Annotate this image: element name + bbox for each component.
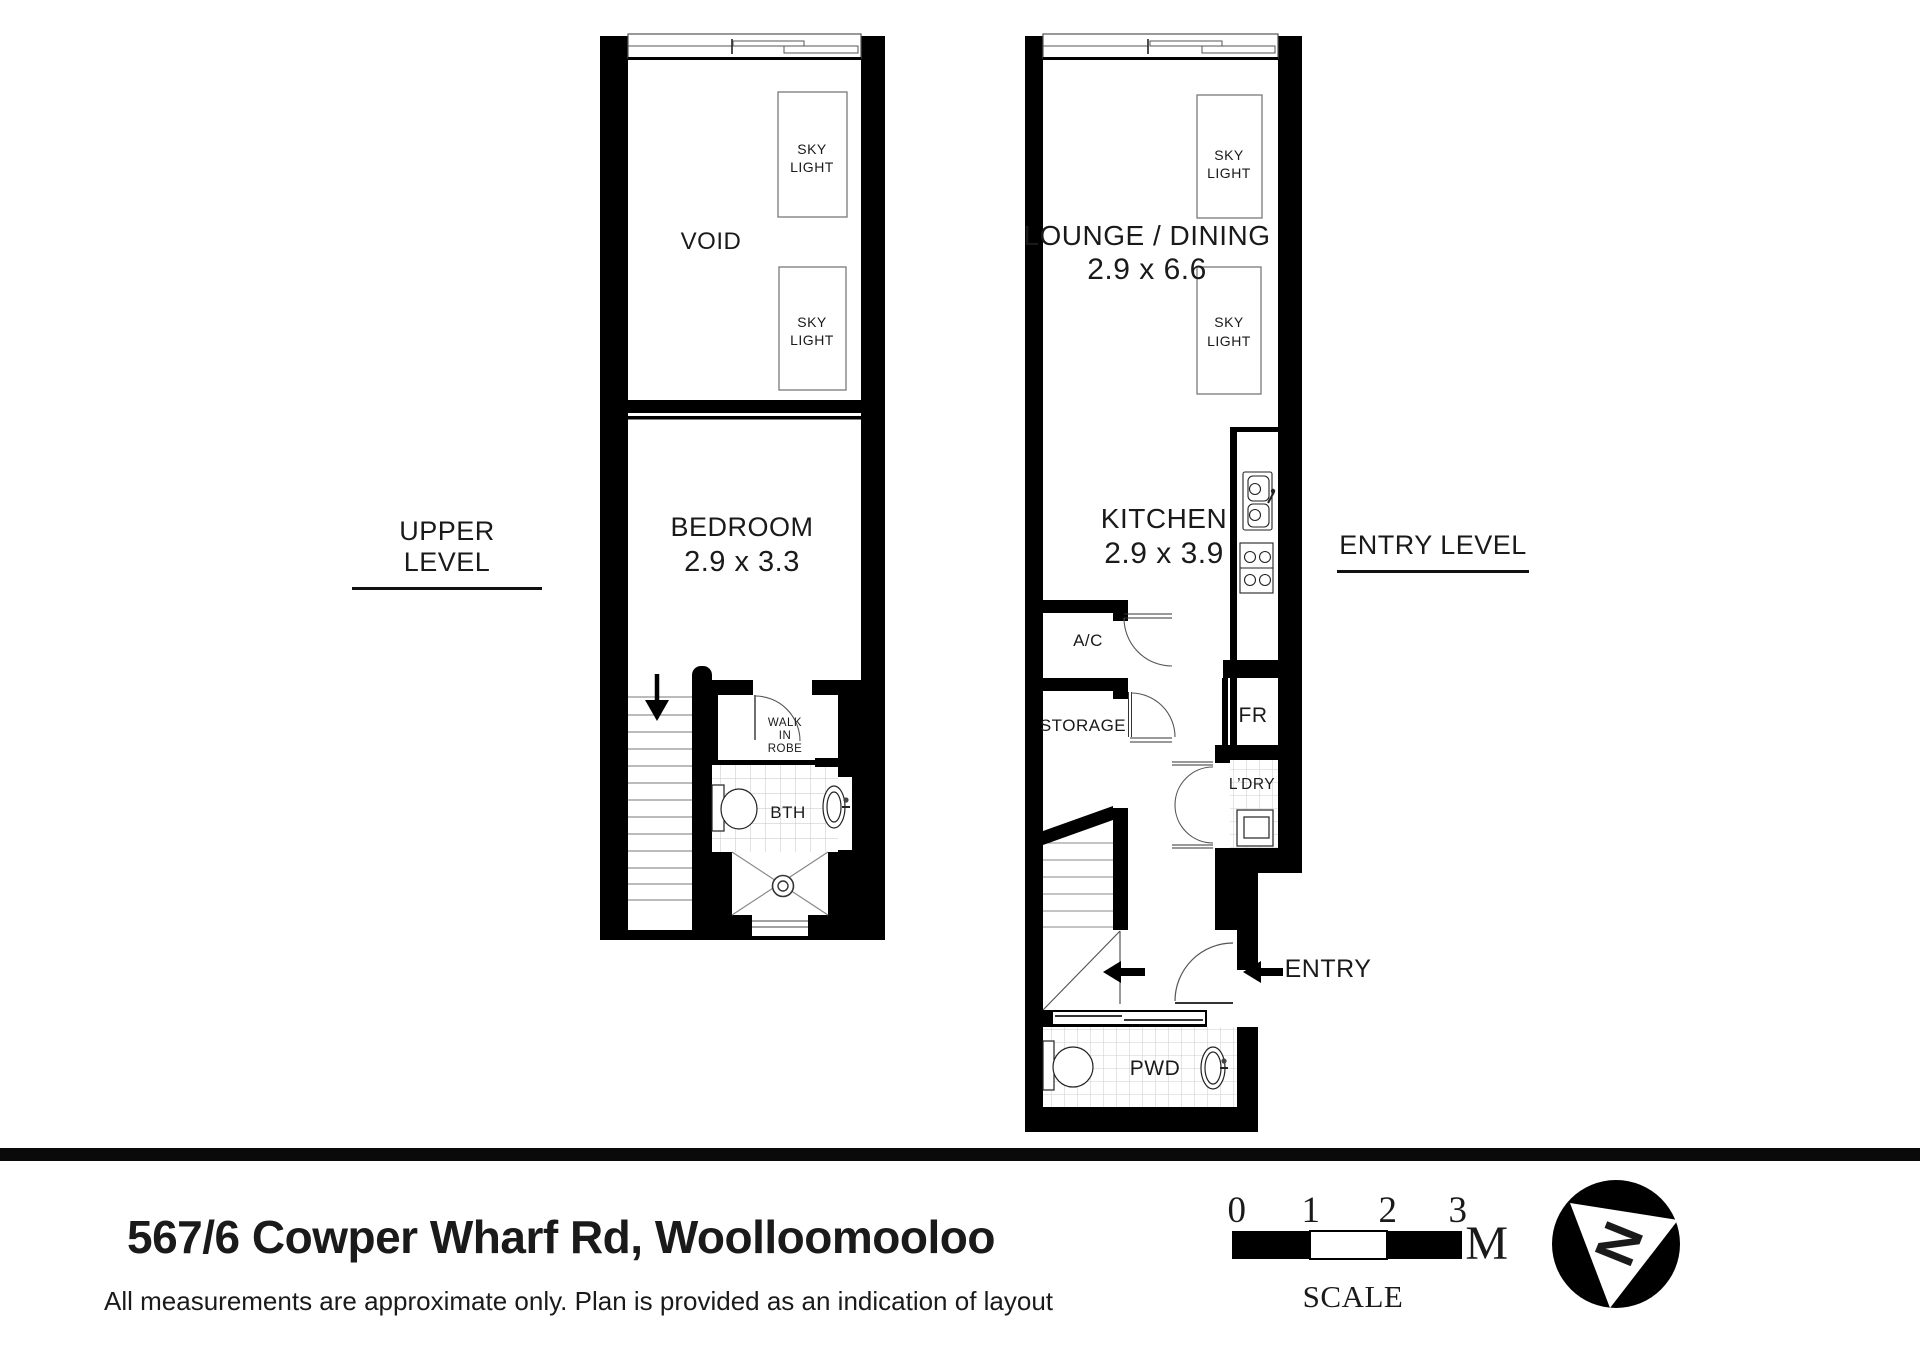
ldry-label: L’DRY (1229, 776, 1275, 793)
fr-label: FR (1239, 704, 1268, 727)
wir-label: ROBE (768, 743, 803, 755)
disclaimer-text: All measurements are approximate only. P… (104, 1286, 1053, 1317)
skylight-3: SKY LIGHT (1197, 95, 1262, 218)
entry-level-floorplan: SKY LIGHT SKY LIGHT LOUNGE / DINING 2.9 … (1025, 28, 1445, 1138)
ac-closet: A/C (1073, 614, 1172, 666)
skylight-label: SKY (1214, 314, 1244, 330)
ldry-door-leaf-bottom (1172, 845, 1213, 848)
entry-level-label: ENTRY LEVEL (1337, 530, 1529, 573)
scale-segment-black (1387, 1231, 1462, 1259)
stair-treads (1043, 843, 1113, 927)
ac-bottom-wall (1025, 678, 1128, 691)
bth-label: BTH (770, 803, 806, 822)
fr-left-wall (1222, 678, 1228, 745)
scale-tick: 2 (1379, 1190, 1398, 1231)
stair-side-wall (1113, 808, 1128, 930)
lounge-dims: 2.9 x 6.6 (1087, 253, 1207, 286)
wir-label: IN (779, 730, 792, 742)
skylight-label: SKY (797, 141, 827, 157)
skylight-2: SKY LIGHT (779, 267, 846, 390)
skylight-label: LIGHT (1207, 165, 1251, 181)
scale-segment-white (1310, 1231, 1387, 1259)
wir-door-gap (753, 678, 812, 695)
stair-strip (628, 680, 692, 930)
wall-below-ldry (1215, 848, 1278, 873)
stairs-upper (628, 666, 712, 940)
wall-left (600, 36, 628, 940)
entry-arrow-inner (1103, 961, 1145, 983)
wall-left (1025, 36, 1043, 1132)
storage-label: STORAGE (1040, 716, 1126, 735)
wall-under-counter (1223, 660, 1278, 678)
skylight-label: SKY (797, 314, 827, 330)
skylight-label: LIGHT (1207, 333, 1251, 349)
stair-break-band (1043, 806, 1113, 845)
skylight-label: LIGHT (790, 159, 834, 175)
scale-tick: 0 (1228, 1190, 1247, 1231)
wall-right (1278, 36, 1302, 873)
address-title: 567/6 Cowper Wharf Rd, Woolloomooloo (127, 1210, 995, 1264)
storage-door-arc (1131, 693, 1175, 737)
upper-level-floorplan: SKY LIGHT SKY LIGHT VOID BEDROOM 2.9 x 3… (600, 28, 885, 943)
counter-top-wall (1230, 427, 1278, 432)
footer-divider (0, 1148, 1920, 1161)
scale-bar: 0 1 2 3 M SCALE (1225, 1180, 1525, 1320)
ldry-door-arc-top (1175, 767, 1213, 805)
scale-unit: M (1465, 1217, 1508, 1270)
pwd-slider-slot (1053, 1012, 1205, 1024)
skylight-1: SKY LIGHT (778, 92, 847, 217)
wall-mid-thin (628, 416, 861, 420)
bedroom-label: BEDROOM (670, 512, 813, 542)
ac-door-leaf (1124, 614, 1172, 618)
storage-door-leaf (1129, 692, 1132, 737)
kitchen-dims: 2.9 x 3.9 (1104, 537, 1224, 570)
entry-door-arc (1175, 943, 1233, 1001)
washer-icon (1237, 810, 1273, 846)
scale-segment-black (1232, 1231, 1310, 1259)
stairs-entry (1043, 806, 1145, 1010)
wall-column-c (1237, 1027, 1258, 1107)
ac-door-arc (1124, 618, 1172, 666)
kitchen-sink-icon (1243, 472, 1275, 530)
upper-level-label: UPPER LEVEL (352, 516, 542, 590)
ac-label: A/C (1073, 631, 1103, 650)
ldry-door-arc-bottom (1175, 805, 1213, 843)
shower-niche (752, 915, 808, 936)
cooktop-icon (1240, 543, 1273, 593)
entry-label: ENTRY (1285, 955, 1372, 983)
ac-top-wall (1025, 600, 1128, 613)
skylight-4: SKY LIGHT (1197, 267, 1261, 394)
ldry-door-leaf-top (1172, 762, 1213, 765)
void-label: VOID (681, 228, 742, 255)
entry-door (1175, 943, 1233, 1003)
powder-room: PWD (1025, 1010, 1237, 1107)
stair-side-wall (692, 666, 712, 940)
bedroom-dims: 2.9 x 3.3 (684, 546, 800, 578)
kitchen-label: KITCHEN (1101, 503, 1227, 534)
storage: STORAGE (1040, 692, 1175, 742)
pwd-label: PWD (1130, 1057, 1181, 1080)
wir-label: WALK (768, 717, 802, 729)
laundry: L’DRY (1172, 760, 1278, 848)
scale-label: SCALE (1303, 1279, 1404, 1314)
bth-wall-stub (815, 758, 838, 767)
shower-icon (732, 852, 828, 915)
window-panel (784, 46, 858, 53)
window-panel (733, 41, 804, 46)
wall-column-a (1215, 873, 1237, 930)
window-panel (1150, 41, 1222, 46)
ac-bottom-block (1113, 678, 1128, 699)
lounge-label: LOUNGE / DINING (1025, 220, 1271, 251)
window-band (628, 34, 861, 59)
wall-mid-band (628, 400, 861, 413)
skylight-label: SKY (1214, 147, 1244, 163)
wall-bottom (1025, 1107, 1258, 1132)
window-band (1043, 34, 1278, 59)
wall-right (861, 36, 885, 940)
north-indicator: N (1545, 1172, 1695, 1320)
skylight-label: LIGHT (790, 332, 834, 348)
wall-column-b (1237, 873, 1258, 970)
window-panel (1202, 46, 1275, 53)
scale-tick: 1 (1302, 1190, 1321, 1231)
storage-door-sill (1130, 738, 1172, 742)
counter-back-wall (1230, 430, 1237, 755)
